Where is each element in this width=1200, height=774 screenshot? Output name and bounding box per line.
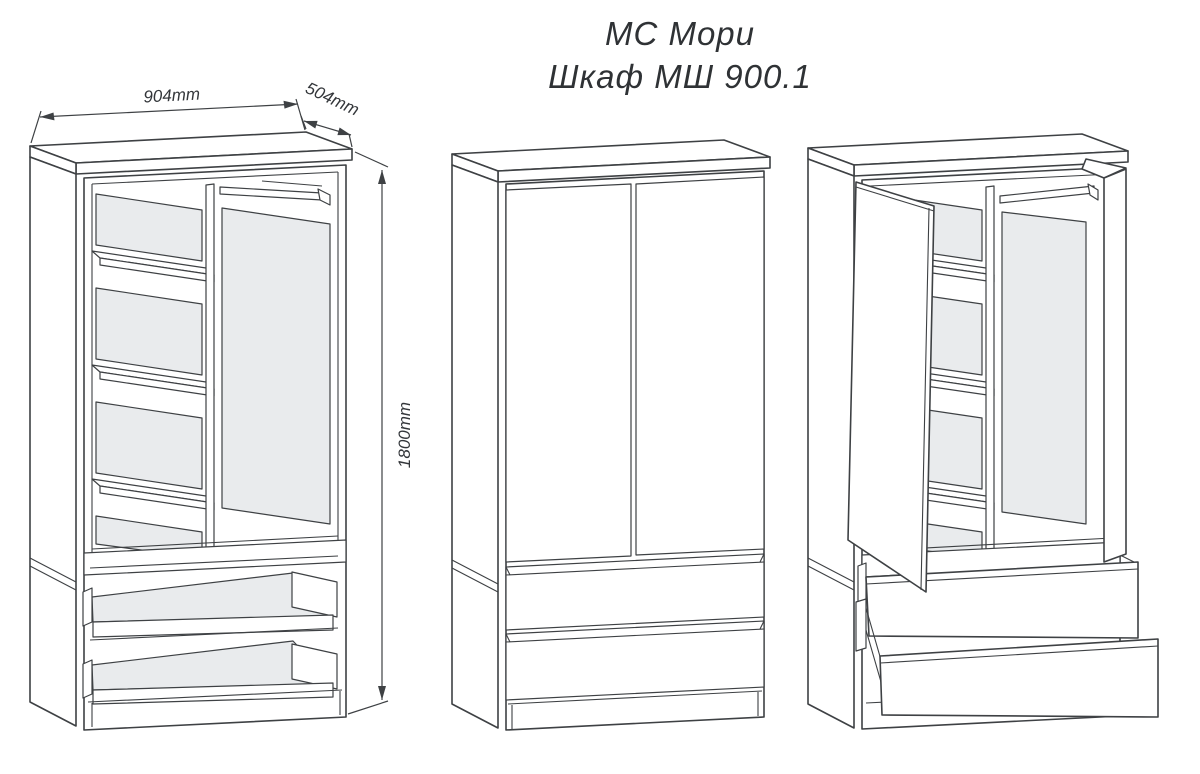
drawer-slide-bracket — [83, 660, 92, 698]
drawer-front-upper — [506, 554, 764, 630]
drawer-slide-bracket — [856, 599, 866, 651]
arrowhead-right-icon — [284, 101, 299, 109]
door-right — [636, 177, 764, 555]
wardrobe-drawing: 904mm 504mm 1800mm — [0, 0, 1200, 774]
depth-dimension-label: 504mm — [303, 78, 362, 119]
height-dimension: 1800mm — [348, 152, 414, 714]
drawing-sheet: МС Мори Шкаф МШ 900.1 904mm 504mm — [0, 0, 1200, 774]
center-divider — [206, 184, 214, 556]
height-dimension-label: 1800mm — [395, 402, 414, 468]
arrowhead-left-icon — [40, 113, 55, 121]
door-left — [506, 184, 631, 562]
drawer-front-lower — [506, 621, 764, 700]
arrowhead-top-icon — [378, 170, 386, 184]
back-panel-tall — [1002, 212, 1086, 524]
door-left-open — [848, 182, 934, 592]
center-divider — [986, 186, 994, 556]
wardrobe-closed-view — [452, 140, 770, 730]
arrowhead-up-icon — [304, 121, 318, 129]
wardrobe-open-structure-view: 904mm 504mm 1800mm — [30, 78, 414, 730]
back-panel — [96, 402, 202, 489]
left-side-panel — [30, 157, 76, 726]
back-panel-tall — [222, 208, 330, 524]
drawer-slide-bracket — [858, 563, 866, 605]
wardrobe-open-doors-view — [808, 134, 1158, 729]
arrowhead-bottom-icon — [378, 686, 386, 700]
drawer-slide-bracket — [83, 588, 92, 626]
left-side-panel — [808, 159, 854, 728]
left-side-panel — [452, 165, 498, 728]
arrowhead-down-icon — [337, 128, 351, 136]
back-panel — [96, 288, 202, 375]
width-dimension-label: 904mm — [143, 85, 201, 107]
